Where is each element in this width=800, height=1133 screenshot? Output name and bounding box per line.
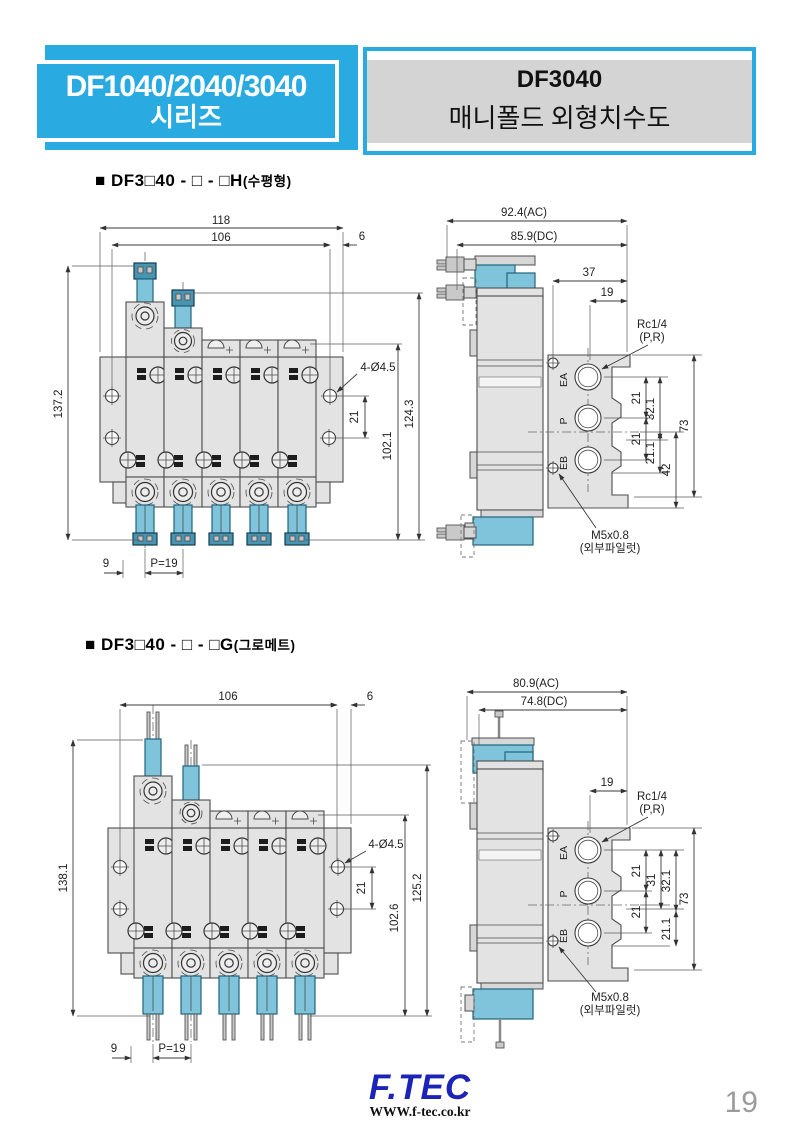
s1-station-top (202, 340, 240, 357)
s2-station-top (286, 811, 324, 828)
dim-label: 21 (631, 433, 643, 446)
s1-solenoid-top-2 (164, 290, 202, 357)
dim-label: 102.6 (389, 904, 401, 933)
dim-label: (P,R) (639, 804, 665, 816)
s1-side-port-block (528, 348, 642, 508)
company-logo: F.TEC WWW.f-tec.co.kr (360, 1072, 480, 1120)
dimension-drawings: 118 106 6 137.2 124.3 102.1 (0, 0, 800, 1133)
s2-station-top (210, 811, 248, 828)
dim-label: M5x0.8 (591, 992, 629, 1004)
dim-label: 21.1 (661, 918, 673, 940)
dim-label: 21 (349, 411, 361, 424)
dim-label: 74.8(DC) (521, 696, 568, 708)
dim-label: P=19 (150, 558, 177, 570)
dim-label: 124.3 (404, 400, 416, 429)
dim-label: 106 (211, 232, 230, 244)
dim-label: 19 (601, 287, 614, 299)
dim-label: 32.1 (645, 398, 657, 420)
port-label-eb: EB (558, 929, 570, 943)
s1-bottom-solenoids (126, 477, 316, 545)
s1-side-view: EA P EB 92.4(AC) 85.9(DC) 37 19 Rc1/4 (P… (437, 207, 702, 557)
s1-side-valve-body (470, 288, 543, 510)
dim-label: Rc1/4 (637, 319, 668, 331)
s2-bottom-solenoids (134, 948, 324, 1040)
dim-label: 118 (212, 215, 230, 227)
s2-side-port-block (528, 821, 642, 981)
dim-label: 19 (601, 777, 614, 789)
s1-station-top (278, 340, 316, 357)
port-label-ea: EA (558, 373, 570, 387)
dim-label: 92.4(AC) (501, 207, 547, 219)
dim-label: 138.1 (58, 864, 70, 893)
dim-label: 73 (679, 420, 691, 433)
logo-text: F.TEC (360, 1072, 480, 1104)
s2-station-top (248, 811, 286, 828)
dim-label: 21 (356, 882, 368, 895)
dim-label: 6 (359, 231, 365, 243)
dim-label: 6 (367, 691, 373, 703)
s1-station-top (240, 340, 278, 357)
s2-side-view: EA P EB 80.9(AC) 74.8(DC) 19 Rc1/4 (P,R) (461, 678, 702, 1048)
dim-label: (외부파일럿) (580, 1003, 641, 1017)
dim-label: 85.9(DC) (511, 231, 558, 243)
dim-label: 137.2 (53, 390, 65, 419)
s2-side-valve-body (470, 761, 543, 983)
dim-label: 125.2 (412, 874, 424, 903)
s2-valve-slice (280, 828, 326, 948)
dim-label: 21 (631, 865, 643, 878)
dim-label: 106 (218, 691, 237, 703)
page-number: 19 (725, 1086, 758, 1120)
dim-label: 21.1 (645, 442, 657, 464)
dim-label: (외부파일럿) (580, 541, 641, 555)
dim-label: 9 (103, 558, 109, 570)
dim-label: 32.1 (661, 870, 673, 892)
dim-label: 37 (583, 267, 596, 279)
website-url: WWW.f-tec.co.kr (360, 1104, 480, 1120)
port-label-ea: EA (558, 846, 570, 860)
dim-label: Rc1/4 (637, 791, 668, 803)
port-label-eb: EB (558, 456, 570, 470)
s1-solenoid-top-1 (126, 263, 164, 357)
dim-label: M5x0.8 (591, 530, 629, 542)
s1-front-view: 118 106 6 137.2 124.3 102.1 (53, 215, 425, 578)
dim-label: (P,R) (639, 332, 665, 344)
dim-label: 21 (631, 392, 643, 405)
dim-label: 31 (646, 874, 658, 887)
port-label-p: P (558, 890, 570, 897)
dim-label: 21 (631, 906, 643, 919)
datasheet-page: DF1040/2040/3040 시리즈 DF3040 매니폴드 외형치수도 ■… (0, 0, 800, 1133)
port-label-p: P (558, 417, 570, 424)
dim-label: 42 (661, 464, 673, 477)
dim-label: P=19 (158, 1043, 185, 1055)
dim-label: 9 (111, 1043, 117, 1055)
dim-label: 80.9(AC) (513, 678, 559, 690)
s1-side-bottom-solenoid (437, 510, 543, 557)
dim-label: 73 (679, 893, 691, 906)
dim-label: 102.1 (382, 432, 394, 461)
s2-front-view: 106 6 138.1 125.2 102.6 21 (58, 691, 432, 1063)
dim-label: 4-Ø4.5 (360, 362, 395, 374)
s2-side-bottom-solenoid (461, 983, 543, 1048)
dim-label: 4-Ø4.5 (368, 839, 403, 851)
s1-valve-slice (272, 357, 318, 477)
